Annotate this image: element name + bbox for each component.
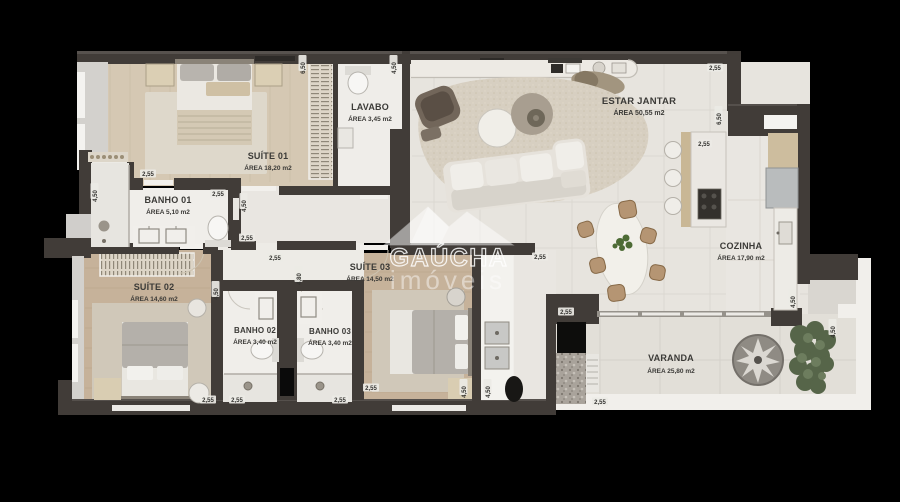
svg-text:SUÍTE 02: SUÍTE 02: [134, 282, 175, 292]
svg-text:BANHO 02: BANHO 02: [234, 326, 276, 335]
svg-text:4,50: 4,50: [791, 296, 797, 308]
svg-text:ÁREA 3,45 m2: ÁREA 3,45 m2: [348, 114, 392, 123]
svg-text:2,55: 2,55: [241, 236, 253, 242]
svg-text:LAVABO: LAVABO: [351, 102, 389, 112]
svg-text:2,55: 2,55: [698, 142, 710, 148]
svg-text:ÁREA 14,50 m2: ÁREA 14,50 m2: [346, 274, 394, 283]
svg-text:4,50: 4,50: [831, 326, 837, 338]
svg-text:BANHO 03: BANHO 03: [309, 327, 351, 336]
svg-text:4,50: 4,50: [392, 62, 398, 74]
svg-text:BANHO 01: BANHO 01: [144, 195, 191, 205]
svg-text:2,55: 2,55: [231, 398, 243, 404]
svg-text:4,50: 4,50: [214, 288, 220, 300]
svg-text:4,50: 4,50: [462, 386, 468, 398]
svg-text:SUÍTE 03: SUÍTE 03: [350, 262, 391, 272]
svg-text:ÁREA 3,40 m2: ÁREA 3,40 m2: [308, 338, 352, 347]
svg-text:ESTAR JANTAR: ESTAR JANTAR: [602, 96, 676, 107]
svg-text:SUÍTE 01: SUÍTE 01: [248, 151, 289, 161]
svg-text:COZINHA: COZINHA: [720, 241, 763, 251]
svg-text:2,55: 2,55: [560, 310, 572, 316]
svg-text:ÁREA 25,80 m2: ÁREA 25,80 m2: [647, 366, 695, 375]
svg-text:4,50: 4,50: [486, 386, 492, 398]
svg-text:2,55: 2,55: [365, 386, 377, 392]
svg-text:2,55: 2,55: [709, 66, 721, 72]
svg-text:imóveis: imóveis: [390, 265, 506, 295]
svg-text:2,55: 2,55: [334, 398, 346, 404]
svg-text:2,55: 2,55: [534, 255, 546, 261]
svg-text:2,55: 2,55: [269, 256, 281, 262]
svg-text:ÁREA 3,40 m2: ÁREA 3,40 m2: [233, 337, 277, 346]
svg-text:4,50: 4,50: [93, 190, 99, 202]
svg-text:2,55: 2,55: [202, 398, 214, 404]
svg-text:ÁREA 17,90 m2: ÁREA 17,90 m2: [717, 253, 765, 262]
svg-text:4,80: 4,80: [297, 273, 303, 285]
svg-text:2,55: 2,55: [594, 400, 606, 406]
svg-text:2,55: 2,55: [142, 172, 154, 178]
svg-text:2,55: 2,55: [212, 192, 224, 198]
svg-text:ÁREA 5,10 m2: ÁREA 5,10 m2: [146, 207, 190, 216]
svg-text:ÁREA 18,20 m2: ÁREA 18,20 m2: [244, 163, 292, 172]
svg-text:6,50: 6,50: [717, 113, 723, 125]
svg-text:ÁREA 14,60 m2: ÁREA 14,60 m2: [130, 294, 178, 303]
svg-text:VARANDA: VARANDA: [648, 353, 694, 363]
svg-text:ÁREA 50,55 m2: ÁREA 50,55 m2: [613, 108, 664, 117]
svg-text:4,50: 4,50: [242, 200, 248, 212]
svg-text:6,50: 6,50: [301, 62, 307, 74]
